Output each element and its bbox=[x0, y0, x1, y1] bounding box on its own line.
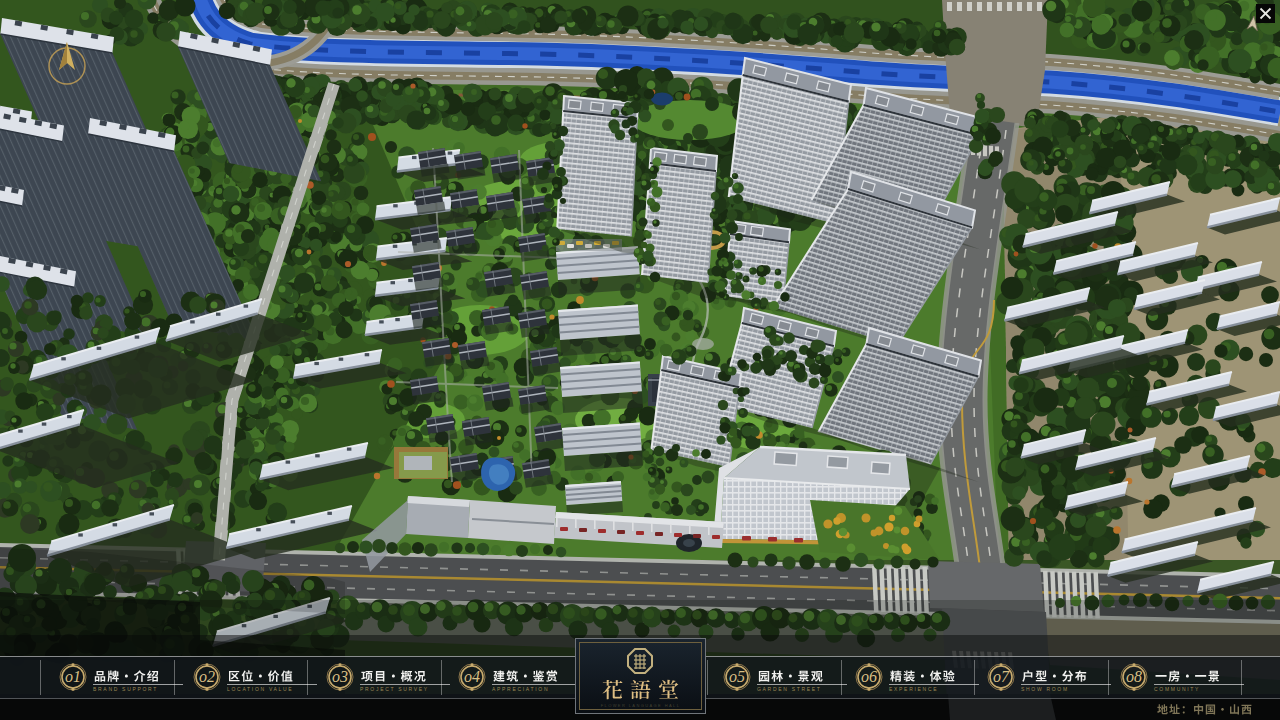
svg-text:o7: o7 bbox=[993, 668, 1010, 685]
svg-text:o2: o2 bbox=[199, 668, 215, 685]
svg-text:o3: o3 bbox=[332, 668, 348, 685]
svg-text:o4: o4 bbox=[464, 668, 480, 685]
svg-text:o5: o5 bbox=[729, 668, 745, 685]
svg-text:o6: o6 bbox=[861, 668, 877, 685]
svg-text:o8: o8 bbox=[1126, 668, 1142, 685]
svg-text:o1: o1 bbox=[65, 668, 81, 685]
